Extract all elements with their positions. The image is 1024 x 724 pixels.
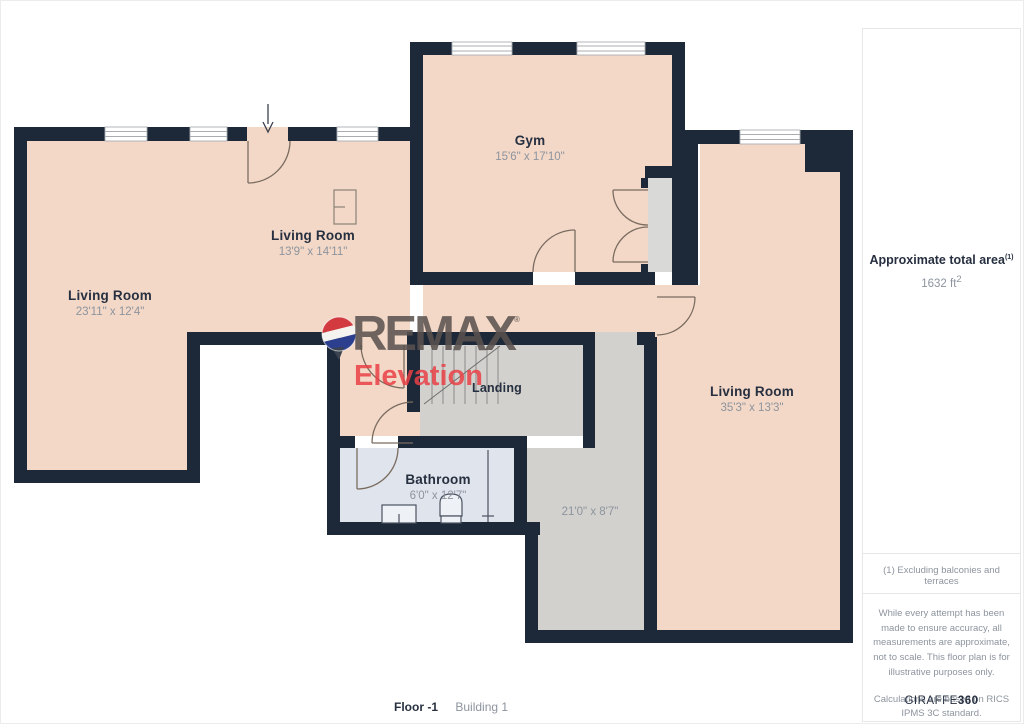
- floor-label: Floor -1: [394, 700, 438, 714]
- area-footnote: (1) Excluding balconies and terraces: [869, 565, 1014, 587]
- floor-footer: Floor -1 Building 1: [394, 700, 508, 714]
- area-value: 1632 ft2: [863, 274, 1020, 290]
- building-label: Building 1: [455, 700, 508, 714]
- floorplan-page: Gym 15'6" x 17'10" Living Room 13'9" x 1…: [0, 0, 1024, 724]
- info-sidebar: Approximate total area(1) 1632 ft2 (1) E…: [862, 28, 1021, 722]
- divider: [863, 553, 1020, 554]
- divider: [863, 593, 1020, 594]
- total-area-block: Approximate total area(1) 1632 ft2: [863, 253, 1020, 290]
- area-title: Approximate total area(1): [863, 253, 1020, 267]
- giraffe360-brand: GIRAFFE360: [863, 695, 1020, 707]
